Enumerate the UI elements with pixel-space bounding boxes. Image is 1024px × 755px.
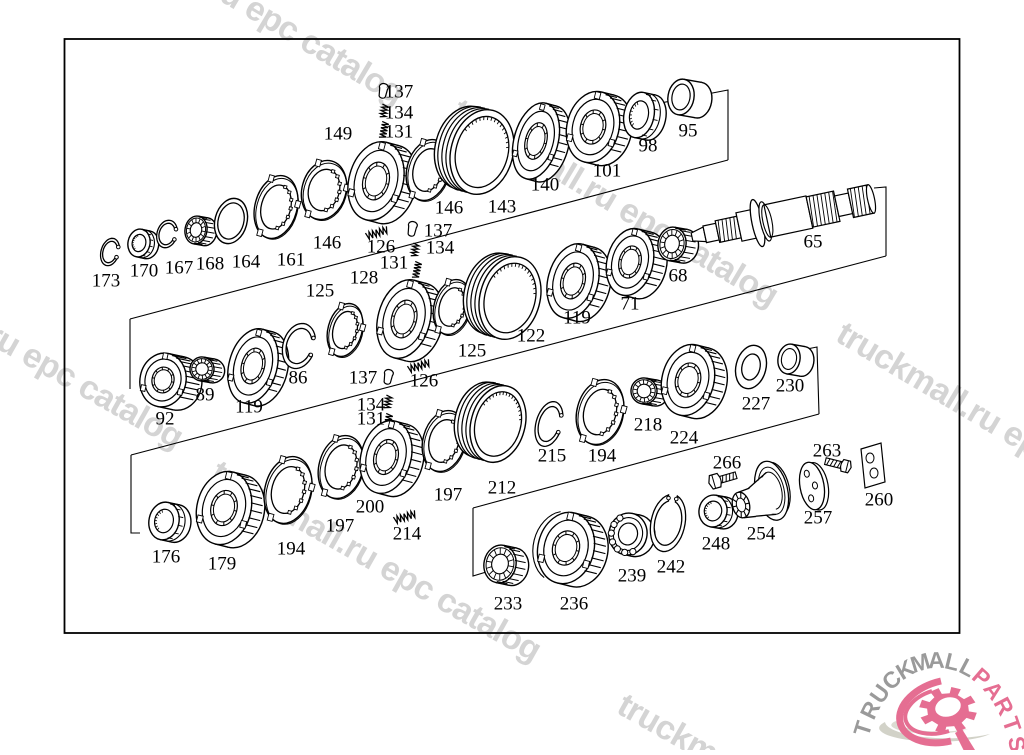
svg-text:137: 137 (385, 82, 414, 103)
svg-text:143: 143 (488, 197, 517, 218)
svg-text:236: 236 (560, 594, 589, 615)
svg-text:266: 266 (713, 453, 742, 474)
svg-text:140: 140 (531, 175, 560, 196)
svg-text:242: 242 (657, 557, 686, 578)
svg-text:218: 218 (634, 415, 663, 436)
svg-text:214: 214 (393, 524, 422, 545)
svg-text:167: 167 (165, 258, 194, 279)
svg-text:194: 194 (277, 539, 306, 560)
svg-text:134: 134 (426, 238, 455, 259)
svg-text:101: 101 (593, 161, 622, 182)
svg-text:131: 131 (380, 253, 409, 274)
svg-text:176: 176 (152, 547, 181, 568)
svg-text:257: 257 (804, 508, 833, 529)
svg-text:248: 248 (702, 534, 731, 555)
svg-text:125: 125 (458, 341, 487, 362)
svg-text:86: 86 (289, 368, 308, 389)
svg-text:230: 230 (776, 376, 805, 397)
svg-text:179: 179 (208, 554, 237, 575)
svg-text:137: 137 (349, 368, 378, 389)
svg-text:161: 161 (277, 250, 306, 271)
svg-text:89: 89 (196, 385, 215, 406)
svg-text:98: 98 (639, 136, 658, 157)
svg-text:131: 131 (357, 409, 386, 430)
svg-text:215: 215 (538, 446, 567, 467)
svg-text:260: 260 (865, 490, 894, 511)
svg-text:200: 200 (356, 497, 385, 518)
svg-text:168: 168 (196, 254, 225, 275)
svg-text:170: 170 (130, 261, 159, 282)
svg-text:227: 227 (742, 394, 771, 415)
svg-text:71: 71 (621, 294, 640, 315)
svg-text:197: 197 (434, 485, 463, 506)
svg-text:119: 119 (563, 308, 591, 329)
svg-text:164: 164 (232, 252, 261, 273)
svg-text:95: 95 (679, 121, 698, 142)
svg-text:126: 126 (410, 371, 439, 392)
svg-text:128: 128 (350, 268, 379, 289)
svg-text:134: 134 (385, 103, 414, 124)
svg-text:68: 68 (669, 266, 688, 287)
svg-text:254: 254 (747, 524, 776, 545)
svg-text:146: 146 (313, 233, 342, 254)
svg-text:239: 239 (618, 566, 647, 587)
svg-text:131: 131 (385, 122, 414, 143)
svg-text:119: 119 (235, 397, 263, 418)
svg-text:173: 173 (92, 271, 121, 292)
svg-text:194: 194 (588, 446, 617, 467)
svg-text:122: 122 (517, 326, 546, 347)
svg-text:224: 224 (670, 428, 699, 449)
svg-text:92: 92 (156, 409, 175, 430)
svg-text:146: 146 (435, 198, 464, 219)
svg-text:212: 212 (488, 478, 517, 499)
svg-text:197: 197 (326, 516, 355, 537)
svg-text:125: 125 (306, 281, 335, 302)
svg-text:149: 149 (324, 124, 353, 145)
svg-text:65: 65 (804, 232, 823, 253)
svg-text:263: 263 (813, 441, 842, 462)
svg-text:233: 233 (494, 594, 523, 615)
